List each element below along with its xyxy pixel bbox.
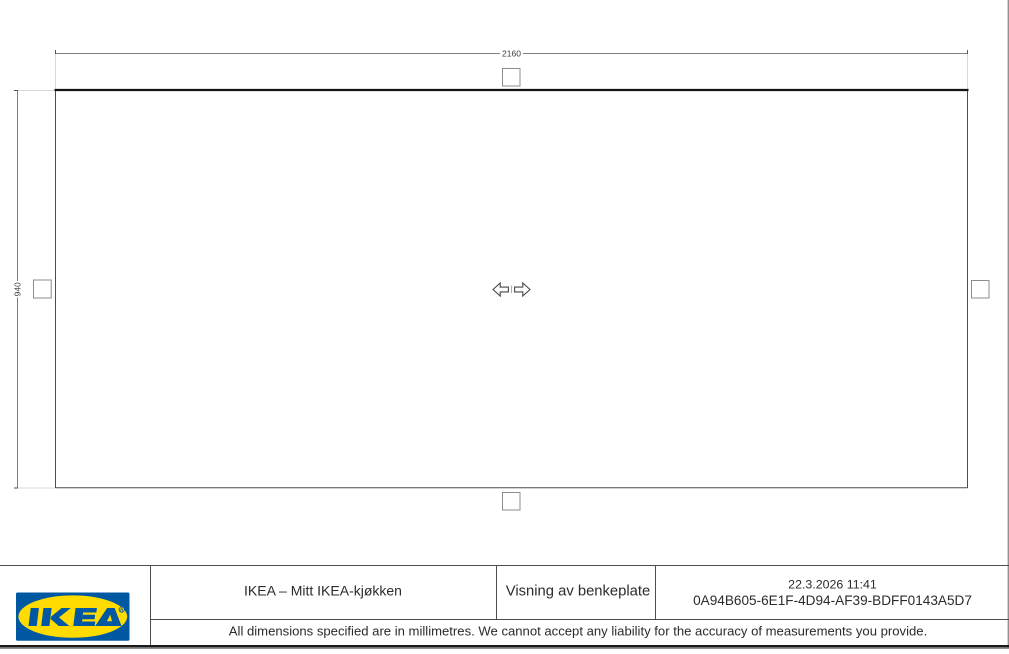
svg-text:22.3.2026 11:41: 22.3.2026 11:41 (788, 578, 877, 592)
svg-text:All dimensions specified are i: All dimensions specified are in millimet… (229, 623, 927, 638)
svg-text:2160: 2160 (502, 48, 521, 58)
svg-text:IKEA – Mitt IKEA-kjøkken: IKEA – Mitt IKEA-kjøkken (244, 583, 402, 599)
svg-text:0A94B605-6E1F-4D94-AF39-BDFF01: 0A94B605-6E1F-4D94-AF39-BDFF0143A5D7 (693, 593, 972, 608)
svg-text:R: R (120, 607, 123, 612)
svg-text:Visning av benkeplate: Visning av benkeplate (506, 584, 651, 600)
svg-text:940: 940 (12, 282, 22, 296)
